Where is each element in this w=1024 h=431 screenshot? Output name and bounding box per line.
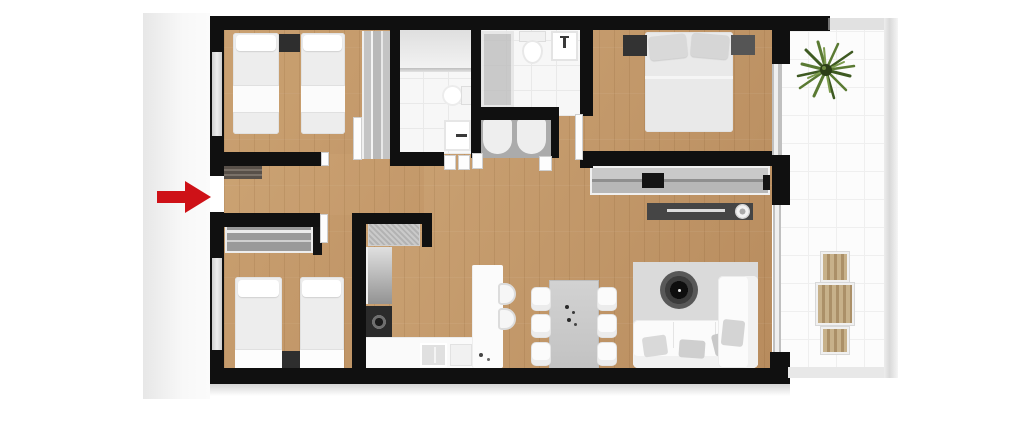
floor-plan [0, 0, 1024, 431]
door-bedroom2 [320, 214, 328, 243]
wall-kitchen-west [352, 213, 366, 370]
bedroom2-bed-left [235, 277, 282, 373]
dining-chair [597, 287, 617, 311]
wall-bathroom1-south [390, 152, 444, 166]
bedroom1-wardrobe [362, 31, 390, 159]
window-bedroom2 [212, 258, 222, 350]
entrance-mat [224, 166, 262, 179]
bathroom1-toilet [442, 84, 472, 107]
master-bed [645, 32, 733, 132]
terrace-railing-bottom [788, 367, 884, 378]
door-bathroom1-right [458, 155, 470, 170]
bathroom1-shower [398, 30, 471, 70]
door-laundry-right [539, 156, 552, 171]
dining-chair [597, 314, 617, 338]
master-nightstand-right [731, 35, 755, 55]
kitchen-oven [366, 306, 392, 337]
laundry-basin-right [517, 119, 546, 154]
wall-kitchen-north [352, 213, 432, 224]
round-coffee-table [660, 271, 698, 309]
sliding-door-living-terrace [773, 205, 781, 352]
kitchen-fridge [366, 247, 392, 304]
wall-terrace-top [772, 16, 830, 31]
terrace-railing-right [884, 18, 898, 378]
wall-right-bottom [770, 352, 790, 384]
wall-master-west [580, 16, 593, 116]
kitchen-drainboard [450, 344, 472, 366]
door-laundry-left [472, 153, 483, 169]
door-bedroom1 [321, 152, 329, 166]
outdoor-table [816, 283, 854, 325]
wall-bedroom1-south [210, 152, 322, 166]
outdoor-chair-top [821, 252, 849, 282]
wall-top [210, 16, 790, 30]
wall-bottom [210, 368, 790, 384]
entrance-arrow-head [185, 181, 211, 213]
dining-chair [531, 287, 551, 311]
bathroom2-toilet [519, 31, 546, 65]
door-master-bedroom [575, 114, 583, 160]
bedroom2-bed-right [300, 277, 344, 373]
tv-sideboard [647, 203, 753, 220]
dining-chair [597, 342, 617, 366]
plan-shadow [210, 384, 790, 396]
dining-table [550, 281, 598, 371]
dining-chair [531, 314, 551, 338]
wall-bedroom2-north [210, 213, 320, 227]
kitchen-tall-cabinet [368, 222, 420, 246]
wall-bath-divider [471, 16, 481, 158]
wall-laundry-right [551, 118, 559, 158]
window-bedroom1 [212, 52, 222, 136]
sofa-chaise [718, 276, 758, 368]
bathroom2-washbasin [551, 31, 578, 61]
door-bathroom1-left [444, 155, 456, 170]
outdoor-chair-bottom [821, 327, 849, 354]
bathroom2-shower-screen [481, 31, 514, 108]
laundry-basin-left [483, 119, 512, 154]
wall-master-south [580, 151, 775, 166]
bedroom1-bed-right [301, 33, 345, 134]
master-wardrobe [590, 166, 770, 195]
wall-laundry-top [471, 107, 559, 120]
dining-chair [531, 342, 551, 366]
bedroom1-bed-left [233, 33, 279, 134]
wall-bedroom1-east [390, 16, 400, 162]
bathroom1-shower-glass [398, 68, 471, 72]
wall-kitchen-cabinet-east [422, 213, 432, 247]
bathroom1-washbasin [444, 120, 471, 151]
bedroom1-nightstand [279, 34, 300, 52]
bedroom1-wardrobe-open-door [353, 117, 362, 160]
kitchen-sink [420, 343, 447, 367]
window-master-terrace [772, 64, 782, 155]
potted-plant [794, 38, 858, 102]
entrance-arrow-icon [157, 191, 187, 203]
master-nightstand-left [623, 35, 647, 56]
